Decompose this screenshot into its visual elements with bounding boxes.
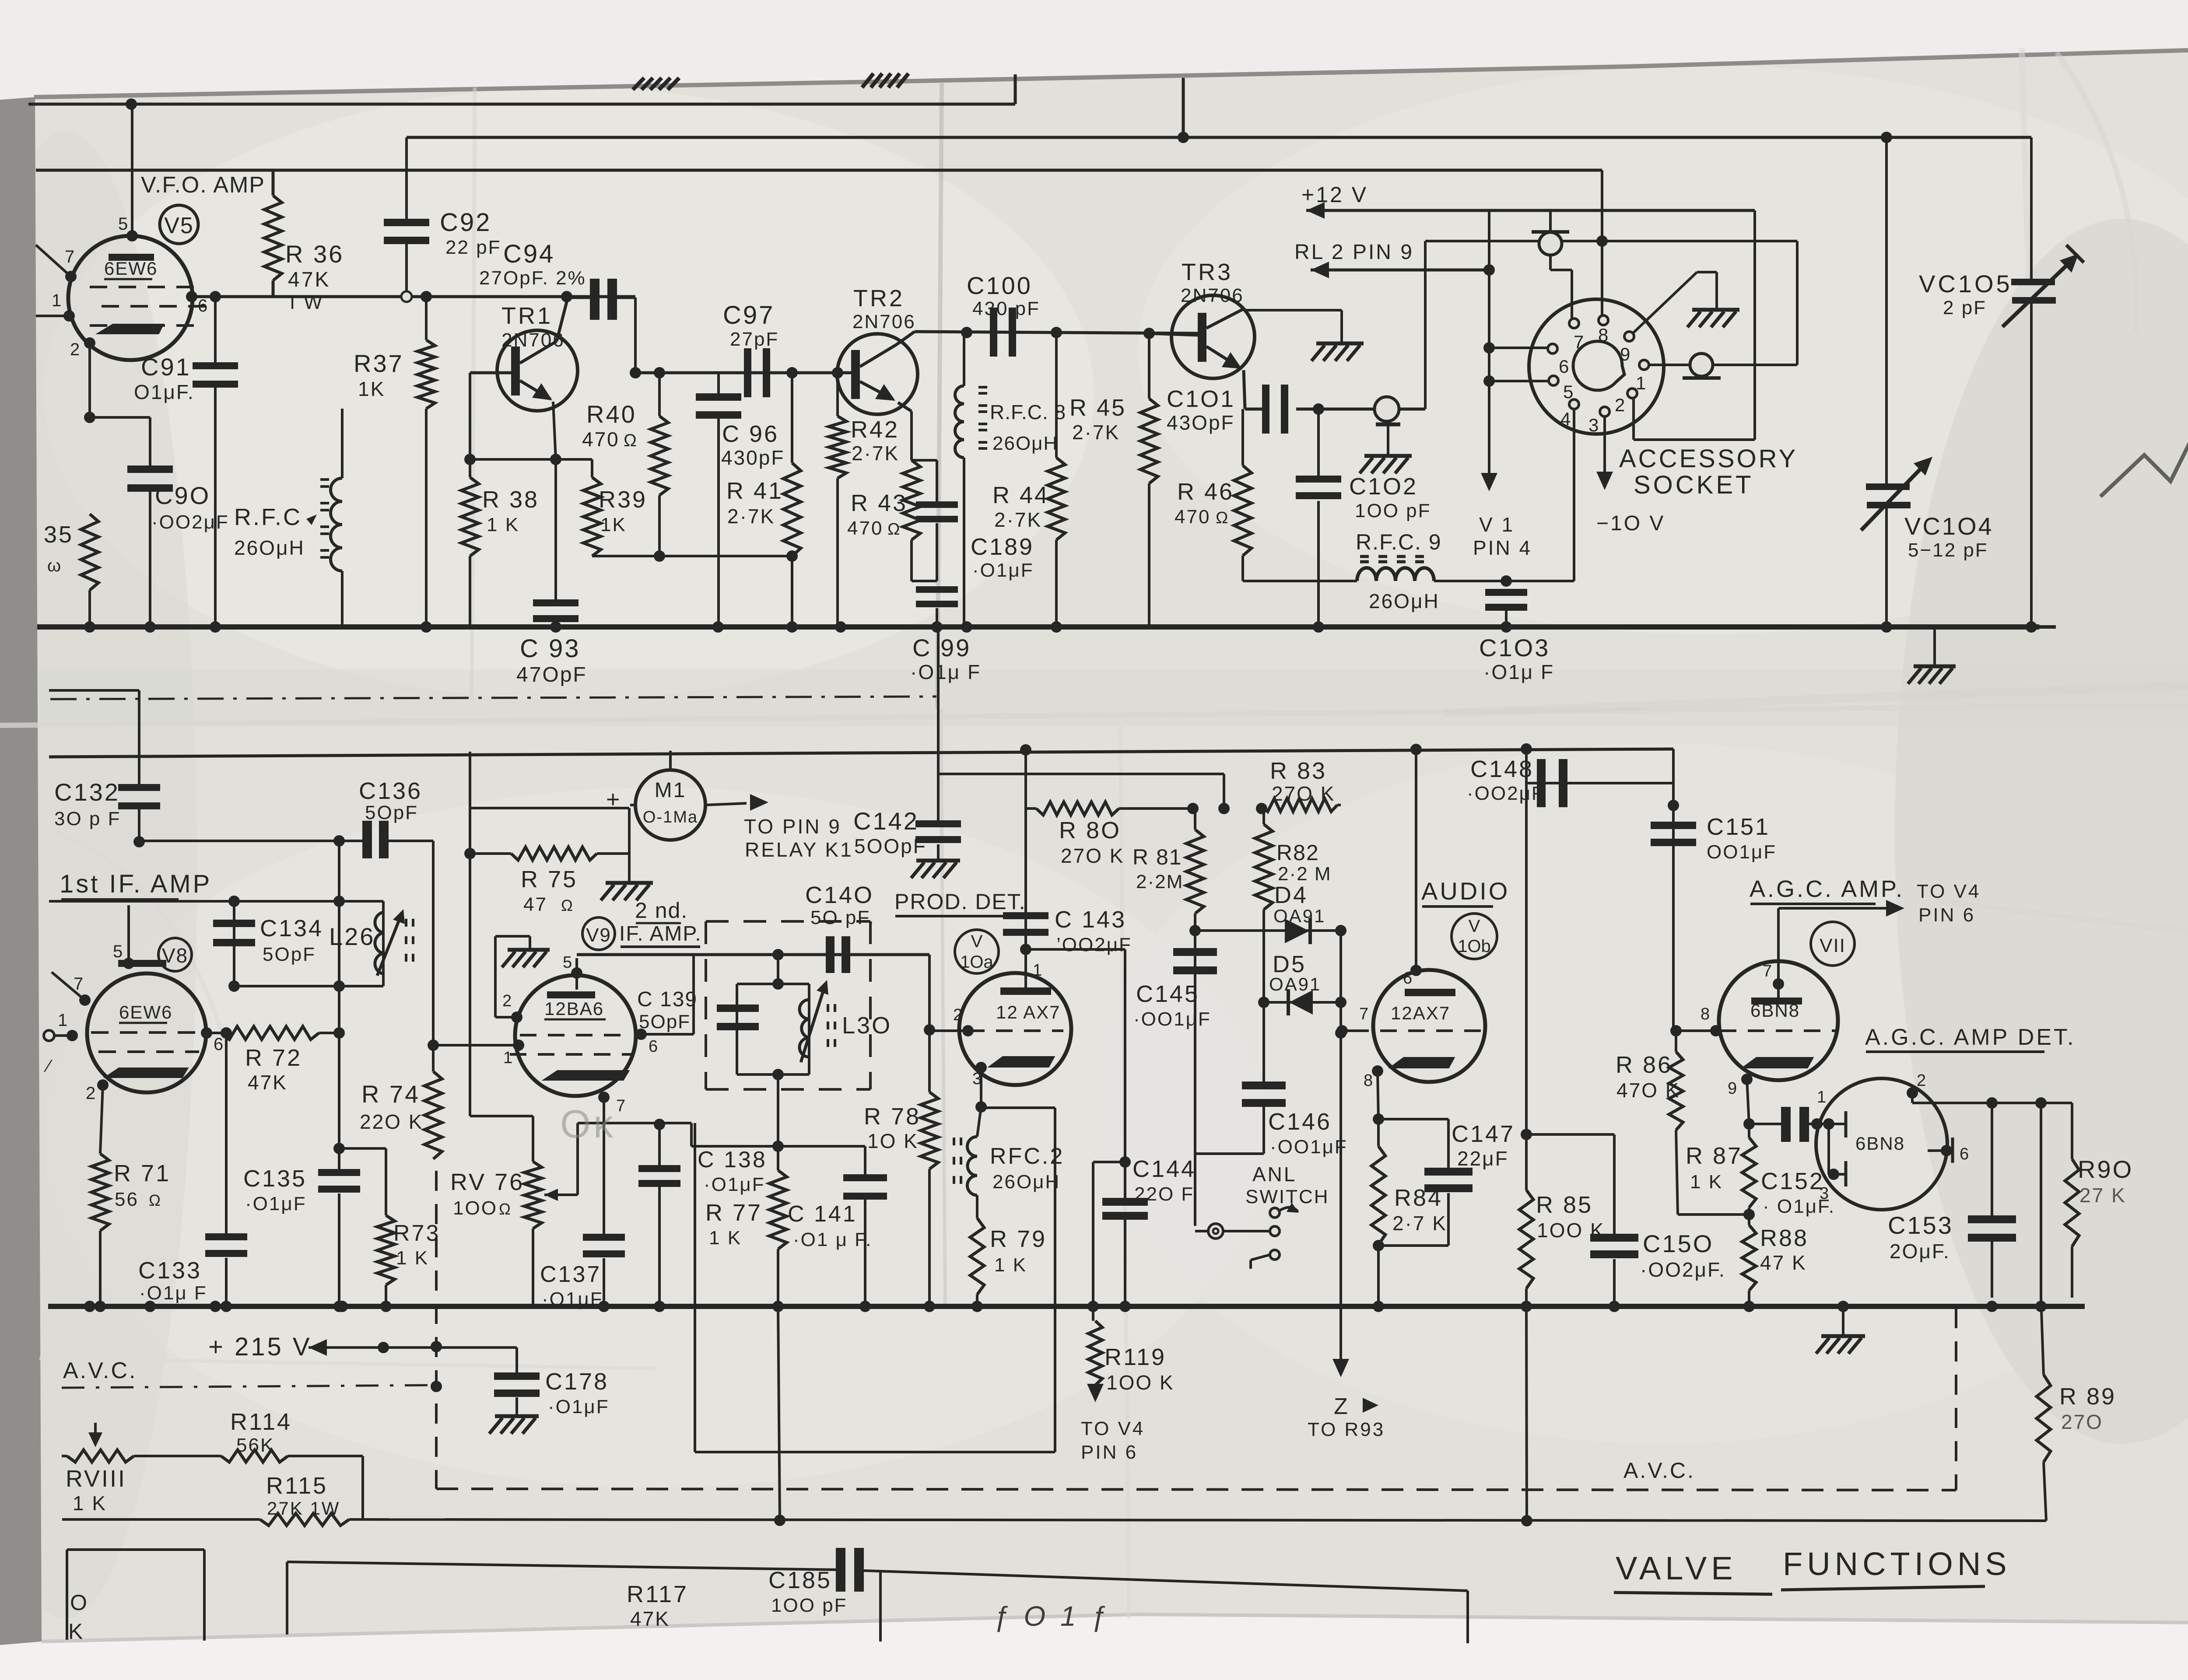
svg-text:C133: C133 bbox=[138, 1257, 202, 1284]
svg-text:2: 2 bbox=[1615, 395, 1625, 415]
svg-text:43OpF: 43OpF bbox=[1167, 411, 1235, 434]
svg-text:2: 2 bbox=[502, 992, 512, 1010]
svg-text:R82: R82 bbox=[1276, 840, 1319, 865]
svg-text:·OO1μF: ·OO1μF bbox=[1133, 1008, 1211, 1030]
svg-text:K: K bbox=[68, 1619, 84, 1644]
svg-text:A.V.C.: A.V.C. bbox=[1623, 1458, 1695, 1483]
svg-text:VC1O5: VC1O5 bbox=[1919, 270, 2013, 297]
svg-text:C148: C148 bbox=[1470, 756, 1534, 782]
svg-text:6: 6 bbox=[198, 296, 207, 315]
svg-text:47 K: 47 K bbox=[1760, 1251, 1807, 1274]
svg-text:·OO2μF.: ·OO2μF. bbox=[1640, 1258, 1726, 1281]
svg-text:A.G.C. AMP DET.: A.G.C. AMP DET. bbox=[1865, 1025, 2076, 1050]
svg-text:27 K: 27 K bbox=[2079, 1184, 2126, 1207]
svg-text:R 38: R 38 bbox=[482, 486, 539, 513]
svg-text:C136: C136 bbox=[359, 778, 422, 804]
svg-text:C189: C189 bbox=[971, 534, 1034, 560]
svg-text:V5: V5 bbox=[164, 213, 194, 238]
svg-text:6: 6 bbox=[649, 1037, 658, 1056]
svg-text:R.F.C. 9: R.F.C. 9 bbox=[1356, 530, 1442, 554]
svg-text:9: 9 bbox=[1728, 1079, 1737, 1098]
svg-text:6BN8: 6BN8 bbox=[1855, 1133, 1905, 1154]
svg-text:26OμH: 26OμH bbox=[1369, 590, 1440, 612]
svg-text:C 139: C 139 bbox=[637, 988, 698, 1011]
svg-text:1 K: 1 K bbox=[487, 514, 519, 535]
svg-text:RFC.2: RFC.2 bbox=[990, 1144, 1064, 1169]
svg-text:+12 V: +12 V bbox=[1301, 182, 1368, 207]
svg-text:OA91: OA91 bbox=[1269, 974, 1321, 994]
svg-text:1OO: 1OO bbox=[453, 1197, 498, 1219]
svg-text:OA91: OA91 bbox=[1273, 906, 1325, 926]
svg-text:+ 215 V: + 215 V bbox=[208, 1333, 312, 1361]
svg-text:2 nd.: 2 nd. bbox=[635, 898, 688, 923]
svg-text:A.V.C.: A.V.C. bbox=[63, 1358, 137, 1383]
svg-text:ACCESSORY: ACCESSORY bbox=[1619, 444, 1798, 473]
svg-text:1OO pF: 1OO pF bbox=[1355, 500, 1431, 521]
svg-text:V.F.O. AMP: V.F.O. AMP bbox=[141, 172, 265, 198]
svg-text:VALVE: VALVE bbox=[1616, 1550, 1737, 1586]
svg-text:C100: C100 bbox=[967, 272, 1032, 299]
svg-text:27OpF. 2%: 27OpF. 2% bbox=[479, 267, 586, 289]
svg-text:R 74: R 74 bbox=[361, 1080, 420, 1108]
svg-text:5: 5 bbox=[113, 942, 123, 961]
svg-text:8: 8 bbox=[1364, 1071, 1373, 1090]
svg-text:·O1μF: ·O1μF bbox=[972, 560, 1034, 581]
svg-text:VC1O4: VC1O4 bbox=[1904, 512, 1994, 540]
svg-text:1 K: 1 K bbox=[73, 1492, 107, 1515]
svg-text:27O K: 27O K bbox=[1272, 782, 1335, 805]
svg-text:R 44: R 44 bbox=[992, 482, 1049, 508]
svg-text:C94: C94 bbox=[503, 240, 555, 268]
svg-text:1Oa: 1Oa bbox=[960, 952, 993, 972]
svg-text:2·7K: 2·7K bbox=[1072, 421, 1120, 444]
svg-text:C14O: C14O bbox=[805, 882, 874, 908]
svg-text:Oĸ: Oĸ bbox=[560, 1102, 616, 1146]
svg-text:C185: C185 bbox=[768, 1567, 832, 1593]
svg-text:2·7K: 2·7K bbox=[727, 505, 775, 528]
svg-text:2: 2 bbox=[953, 1006, 962, 1024]
svg-text:VII: VII bbox=[1820, 935, 1846, 956]
svg-text:1 K: 1 K bbox=[994, 1254, 1027, 1276]
svg-text:O-1Ma: O-1Ma bbox=[643, 808, 698, 826]
svg-text:C142: C142 bbox=[853, 807, 919, 835]
svg-text:R.F.C. 8: R.F.C. 8 bbox=[990, 401, 1066, 423]
svg-text:V: V bbox=[971, 932, 983, 951]
svg-text:ƒ O 1 ƒ: ƒ O 1 ƒ bbox=[993, 1600, 1110, 1632]
svg-text:6: 6 bbox=[1559, 356, 1569, 377]
svg-text:2: 2 bbox=[70, 340, 80, 359]
svg-text:7: 7 bbox=[1574, 332, 1584, 352]
svg-text:9: 9 bbox=[1620, 344, 1630, 364]
svg-text:1st IF. AMP: 1st IF. AMP bbox=[60, 870, 212, 898]
svg-text:22O F: 22O F bbox=[1134, 1183, 1194, 1205]
svg-text:1: 1 bbox=[1817, 1088, 1826, 1106]
svg-text:C144: C144 bbox=[1133, 1156, 1196, 1182]
svg-text:O1μF.: O1μF. bbox=[134, 381, 195, 403]
svg-text:·OO1μF: ·OO1μF bbox=[1270, 1136, 1348, 1158]
svg-text:Ω: Ω bbox=[149, 1191, 161, 1209]
svg-text:1 K: 1 K bbox=[1690, 1171, 1723, 1193]
svg-text:M1: M1 bbox=[655, 779, 687, 802]
svg-text:C132: C132 bbox=[54, 778, 120, 806]
svg-text:1OO K: 1OO K bbox=[1106, 1371, 1175, 1394]
svg-text:5−12 pF: 5−12 pF bbox=[1908, 539, 1988, 561]
svg-text:C1O3: C1O3 bbox=[1479, 634, 1550, 661]
svg-text:TR1: TR1 bbox=[501, 303, 553, 329]
svg-text:ANL: ANL bbox=[1252, 1163, 1297, 1186]
svg-text:7: 7 bbox=[616, 1097, 625, 1115]
svg-text:C 99: C 99 bbox=[912, 634, 971, 661]
svg-text:1 K: 1 K bbox=[709, 1227, 742, 1249]
svg-text:2N706: 2N706 bbox=[501, 329, 565, 351]
svg-text:C 93: C 93 bbox=[520, 634, 581, 663]
svg-text:C 143: C 143 bbox=[1055, 906, 1126, 933]
svg-text:2·7 K: 2·7 K bbox=[1392, 1212, 1447, 1235]
svg-text:FUNCTIONS: FUNCTIONS bbox=[1783, 1546, 2011, 1582]
svg-text:C91: C91 bbox=[141, 353, 191, 381]
svg-text:C 96: C 96 bbox=[722, 421, 779, 447]
svg-text:O: O bbox=[70, 1590, 88, 1615]
svg-text:470: 470 bbox=[847, 518, 883, 539]
svg-text:7: 7 bbox=[74, 974, 83, 994]
svg-text:D5: D5 bbox=[1273, 951, 1306, 977]
svg-text:RV 76: RV 76 bbox=[450, 1169, 524, 1195]
svg-text:22O K: 22O K bbox=[360, 1110, 423, 1133]
svg-text:C9O: C9O bbox=[155, 482, 210, 509]
svg-text:R115: R115 bbox=[266, 1473, 328, 1499]
svg-text:35: 35 bbox=[44, 521, 74, 548]
svg-text:·O1μF: ·O1μF bbox=[245, 1193, 307, 1214]
svg-text:PIN 6: PIN 6 bbox=[1918, 904, 1975, 926]
svg-text:2OμF.: 2OμF. bbox=[1890, 1240, 1950, 1263]
svg-text:R 46: R 46 bbox=[1177, 479, 1234, 505]
svg-text:TR2: TR2 bbox=[853, 285, 905, 311]
svg-text:RVIII: RVIII bbox=[66, 1466, 126, 1492]
svg-text:2·2M: 2·2M bbox=[1136, 871, 1183, 892]
svg-text:1K: 1K bbox=[358, 378, 385, 400]
svg-text:Ω: Ω bbox=[887, 520, 900, 539]
svg-text:2: 2 bbox=[1917, 1071, 1926, 1090]
svg-text:26OμH: 26OμH bbox=[992, 1171, 1060, 1193]
svg-text:AUDIO: AUDIO bbox=[1421, 877, 1510, 905]
svg-text:430 pF: 430 pF bbox=[972, 298, 1040, 319]
svg-text:R 78: R 78 bbox=[864, 1103, 921, 1130]
svg-text:8: 8 bbox=[1701, 1005, 1710, 1023]
svg-text:1O K: 1O K bbox=[867, 1130, 919, 1152]
svg-text:C97: C97 bbox=[723, 301, 775, 329]
svg-text:R114: R114 bbox=[230, 1409, 292, 1435]
svg-text:RELAY K1: RELAY K1 bbox=[745, 838, 853, 861]
svg-text:R37: R37 bbox=[354, 350, 404, 377]
svg-text:R 79: R 79 bbox=[990, 1226, 1047, 1252]
svg-text:SOCKET: SOCKET bbox=[1634, 471, 1754, 499]
svg-text:I W: I W bbox=[290, 292, 324, 313]
svg-text:−1O V: −1O V bbox=[1596, 512, 1665, 535]
svg-text:TO V4: TO V4 bbox=[1081, 1418, 1145, 1439]
svg-text:Ω: Ω bbox=[1216, 509, 1228, 527]
svg-text:C137: C137 bbox=[540, 1262, 601, 1287]
svg-text:R 86: R 86 bbox=[1616, 1052, 1673, 1078]
svg-text:OO1μF: OO1μF bbox=[1707, 841, 1777, 863]
svg-text:R 85: R 85 bbox=[1536, 1192, 1593, 1218]
svg-text:3: 3 bbox=[1820, 1184, 1829, 1203]
svg-text:6: 6 bbox=[1403, 969, 1412, 987]
svg-text:R 43: R 43 bbox=[851, 490, 908, 516]
svg-text:27O: 27O bbox=[2061, 1410, 2103, 1433]
svg-text:Ω: Ω bbox=[499, 1200, 511, 1218]
svg-text:3O p F: 3O p F bbox=[54, 808, 121, 829]
svg-text:·OO2μF: ·OO2μF bbox=[1467, 783, 1545, 804]
svg-text:PIN 6: PIN 6 bbox=[1081, 1442, 1138, 1463]
svg-text:SWITCH: SWITCH bbox=[1245, 1186, 1329, 1207]
svg-text:ω: ω bbox=[47, 556, 61, 575]
svg-text:7: 7 bbox=[65, 247, 74, 266]
svg-text:R 36: R 36 bbox=[285, 240, 344, 268]
svg-text:R 75: R 75 bbox=[521, 866, 578, 892]
svg-text:V: V bbox=[1469, 917, 1480, 936]
svg-text:R.F.C: R.F.C bbox=[234, 504, 302, 530]
svg-text:R40: R40 bbox=[586, 400, 637, 428]
svg-text:C1O1: C1O1 bbox=[1167, 386, 1235, 412]
svg-text:C 141: C 141 bbox=[788, 1201, 857, 1227]
svg-text:R73: R73 bbox=[393, 1221, 440, 1246]
svg-text:5OpF: 5OpF bbox=[365, 802, 418, 823]
svg-text:6: 6 bbox=[214, 1035, 223, 1054]
svg-text:56: 56 bbox=[115, 1189, 139, 1210]
svg-text:A.G.C. AMP.: A.G.C. AMP. bbox=[1750, 876, 1904, 902]
svg-text:5: 5 bbox=[1563, 381, 1573, 402]
svg-text:2·2 M: 2·2 M bbox=[1278, 863, 1331, 885]
svg-text:PROD. DET.: PROD. DET. bbox=[894, 889, 1026, 914]
svg-text:R42: R42 bbox=[851, 416, 899, 443]
svg-text:·O1μF: ·O1μF bbox=[704, 1174, 765, 1195]
svg-text:27pF: 27pF bbox=[730, 329, 779, 350]
svg-text:C151: C151 bbox=[1707, 814, 1770, 840]
svg-text:12 AX7: 12 AX7 bbox=[996, 1002, 1060, 1022]
svg-text:47O K: 47O K bbox=[1616, 1079, 1680, 1102]
svg-text:R 8O: R 8O bbox=[1059, 817, 1121, 843]
svg-text:IF. AMP.: IF. AMP. bbox=[619, 922, 702, 945]
svg-text:5OpF: 5OpF bbox=[263, 944, 316, 965]
svg-text:1Ob: 1Ob bbox=[1458, 937, 1491, 956]
svg-text:R 77: R 77 bbox=[705, 1200, 762, 1226]
svg-text:C92: C92 bbox=[440, 208, 491, 237]
svg-text:6BN8: 6BN8 bbox=[1750, 1000, 1800, 1021]
svg-text:47K: 47K bbox=[630, 1607, 670, 1630]
svg-text:2·7K: 2·7K bbox=[994, 508, 1042, 531]
svg-text:TO PIN 9: TO PIN 9 bbox=[744, 815, 842, 838]
svg-text:1: 1 bbox=[58, 1011, 67, 1030]
svg-text:L26: L26 bbox=[329, 923, 375, 950]
svg-text:5: 5 bbox=[563, 953, 572, 972]
svg-text:R 83: R 83 bbox=[1270, 758, 1327, 784]
svg-text:26OμH: 26OμH bbox=[234, 536, 305, 559]
svg-text:27K 1W: 27K 1W bbox=[267, 1498, 340, 1519]
svg-text:6: 6 bbox=[1960, 1145, 1969, 1163]
svg-text:7: 7 bbox=[1359, 1005, 1368, 1023]
svg-text:2: 2 bbox=[86, 1084, 95, 1103]
svg-text:·OO2μF: ·OO2μF bbox=[151, 511, 229, 533]
svg-text:1: 1 bbox=[52, 291, 61, 310]
svg-text:2 pF: 2 pF bbox=[1943, 297, 1987, 318]
svg-text:47: 47 bbox=[523, 894, 547, 915]
svg-text:·O1μF: ·O1μF bbox=[548, 1396, 610, 1417]
svg-text:·O1 μ F.: ·O1 μ F. bbox=[793, 1229, 872, 1250]
svg-text:2N706: 2N706 bbox=[852, 311, 916, 332]
svg-text:2N706: 2N706 bbox=[1181, 285, 1244, 306]
svg-text:1: 1 bbox=[1033, 961, 1042, 980]
svg-text:27O K: 27O K bbox=[1061, 844, 1124, 867]
svg-text:C146: C146 bbox=[1268, 1109, 1332, 1135]
svg-text:V 1: V 1 bbox=[1479, 513, 1515, 536]
svg-text:R119: R119 bbox=[1105, 1344, 1166, 1370]
svg-text:PIN 4: PIN 4 bbox=[1473, 536, 1532, 559]
svg-text:C153: C153 bbox=[1888, 1211, 1953, 1239]
svg-text:R84: R84 bbox=[1394, 1185, 1443, 1211]
svg-text:5OpF: 5OpF bbox=[639, 1011, 691, 1032]
svg-text:R9O: R9O bbox=[2078, 1155, 2133, 1183]
svg-text:V9: V9 bbox=[586, 924, 611, 946]
svg-text:Ω: Ω bbox=[624, 431, 637, 450]
svg-text:·O1μ F: ·O1μ F bbox=[1483, 661, 1554, 683]
svg-text:12AX7: 12AX7 bbox=[1391, 1003, 1450, 1023]
svg-text:1 K: 1 K bbox=[396, 1247, 429, 1269]
svg-text:2·7K: 2·7K bbox=[852, 442, 899, 465]
svg-text:C178: C178 bbox=[545, 1368, 609, 1395]
svg-text:·O1μ F: ·O1μ F bbox=[910, 661, 981, 683]
svg-text:8: 8 bbox=[1598, 325, 1608, 345]
svg-text:R39: R39 bbox=[599, 486, 647, 513]
svg-text:1OO pF: 1OO pF bbox=[771, 1595, 848, 1616]
svg-text:C 138: C 138 bbox=[698, 1147, 767, 1172]
svg-text:TO V4: TO V4 bbox=[1917, 881, 1981, 902]
svg-text:·O1μ F: ·O1μ F bbox=[139, 1282, 207, 1304]
svg-text:R 45: R 45 bbox=[1069, 395, 1126, 421]
svg-text:R117: R117 bbox=[627, 1581, 688, 1607]
svg-text:26OμH: 26OμH bbox=[992, 433, 1058, 454]
svg-text:RL 2 PIN 9: RL 2 PIN 9 bbox=[1294, 241, 1414, 264]
svg-text:56K: 56K bbox=[236, 1435, 274, 1456]
svg-text:4: 4 bbox=[1560, 409, 1571, 429]
svg-text:TO R93: TO R93 bbox=[1308, 1419, 1385, 1440]
svg-text:C152: C152 bbox=[1761, 1168, 1824, 1194]
svg-text:12BA6: 12BA6 bbox=[544, 998, 604, 1019]
svg-text:C1O2: C1O2 bbox=[1349, 473, 1418, 500]
svg-text:1K: 1K bbox=[600, 514, 627, 535]
svg-text:C15O: C15O bbox=[1643, 1230, 1714, 1257]
svg-text:TR3: TR3 bbox=[1182, 259, 1233, 285]
svg-text:47K: 47K bbox=[248, 1071, 288, 1094]
svg-text:R 87: R 87 bbox=[1686, 1143, 1743, 1169]
svg-text:Ω: Ω bbox=[561, 896, 573, 914]
svg-text:3: 3 bbox=[1588, 415, 1599, 435]
svg-text:Z: Z bbox=[1334, 1394, 1349, 1419]
svg-text:1: 1 bbox=[1636, 373, 1646, 393]
svg-text:5O pF.: 5O pF. bbox=[810, 907, 875, 928]
svg-text:L3O: L3O bbox=[842, 1012, 892, 1039]
svg-text:D4: D4 bbox=[1274, 882, 1308, 908]
svg-text:C134: C134 bbox=[260, 915, 323, 941]
svg-text:R88: R88 bbox=[1760, 1225, 1809, 1251]
svg-text:C135: C135 bbox=[243, 1165, 307, 1192]
svg-text:47OpF: 47OpF bbox=[516, 663, 587, 686]
svg-text:5: 5 bbox=[118, 214, 128, 234]
svg-text:C145: C145 bbox=[1136, 981, 1199, 1007]
svg-text:R 89: R 89 bbox=[2059, 1383, 2116, 1410]
svg-text:22 pF: 22 pF bbox=[445, 237, 501, 258]
svg-text:22μF: 22μF bbox=[1457, 1147, 1509, 1170]
svg-text:5OOpF: 5OOpF bbox=[854, 835, 927, 857]
svg-text:47K: 47K bbox=[288, 268, 330, 291]
svg-text:7: 7 bbox=[1763, 962, 1772, 980]
svg-text:6EW6: 6EW6 bbox=[104, 258, 158, 279]
svg-text:R 41: R 41 bbox=[726, 478, 783, 504]
svg-text:6EW6: 6EW6 bbox=[119, 1002, 172, 1022]
svg-text:430pF: 430pF bbox=[721, 446, 785, 469]
svg-text:C147: C147 bbox=[1452, 1121, 1515, 1147]
svg-text:R 71: R 71 bbox=[114, 1160, 171, 1186]
svg-text:470: 470 bbox=[1175, 506, 1210, 528]
svg-text:470: 470 bbox=[582, 428, 620, 451]
svg-text:’OO2μF: ’OO2μF bbox=[1056, 934, 1132, 955]
svg-text:1: 1 bbox=[503, 1049, 512, 1067]
svg-text:R 72: R 72 bbox=[245, 1045, 302, 1071]
svg-text:R 81: R 81 bbox=[1133, 845, 1182, 869]
